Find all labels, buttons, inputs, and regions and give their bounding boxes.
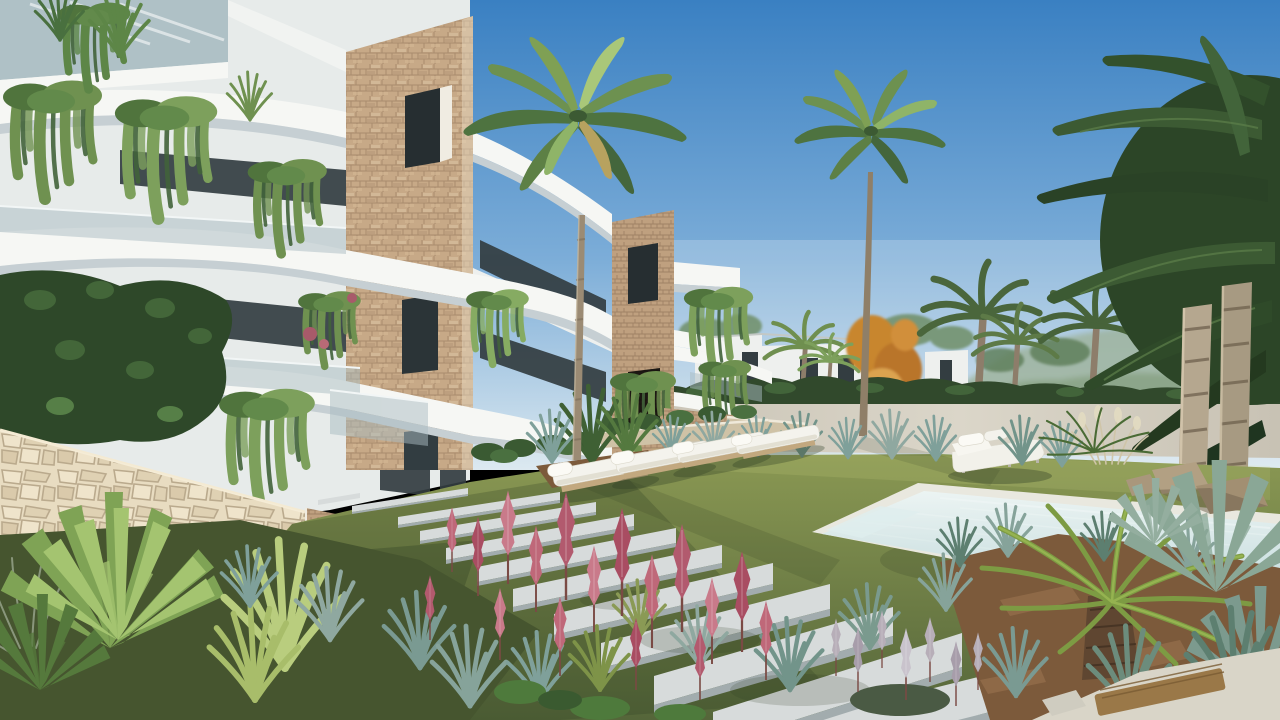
- render-canvas: [0, 0, 1280, 720]
- tower-edge-light: [462, 16, 473, 470]
- architectural-render-image: [0, 0, 1280, 720]
